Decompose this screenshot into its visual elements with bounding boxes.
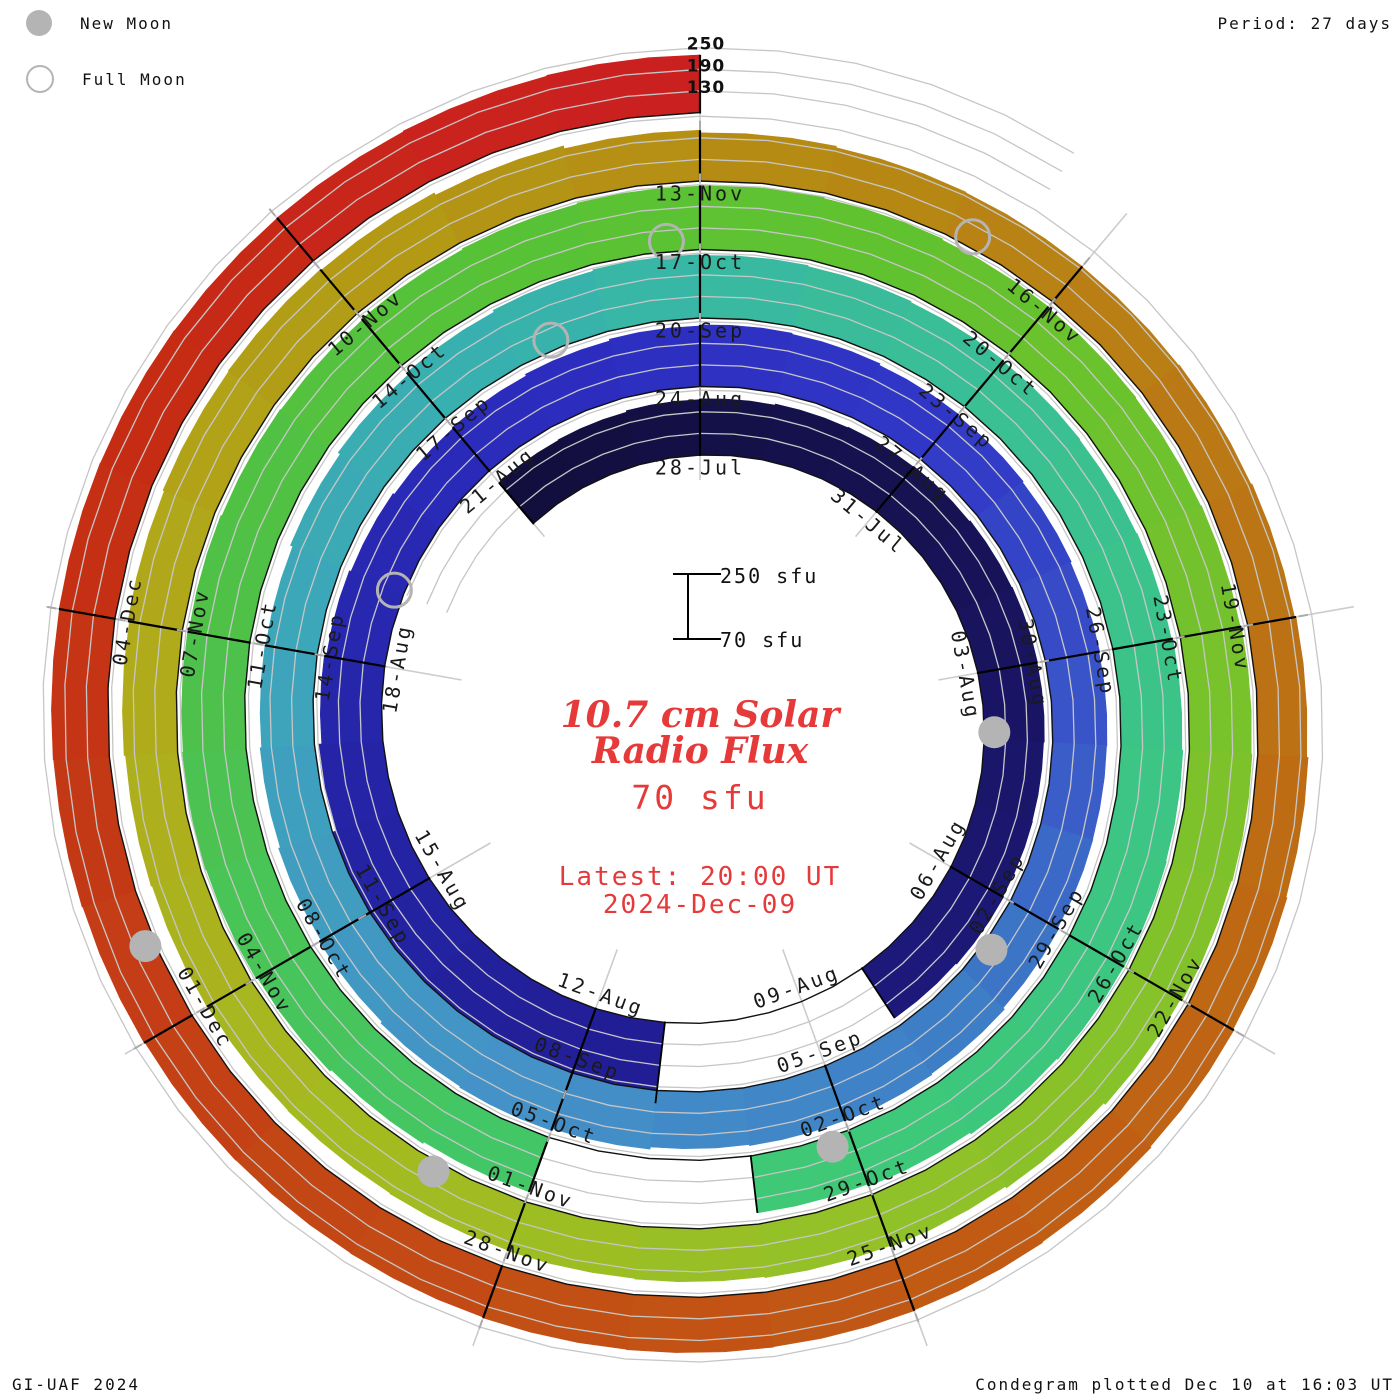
period-label: Period: 27 days (1218, 14, 1393, 33)
new-moon-marker (975, 934, 1007, 966)
plotted-timestamp: Condegram plotted Dec 10 at 16:03 UT (975, 1375, 1394, 1394)
date-label: 24-Aug (655, 387, 745, 411)
new-moon-icon (26, 10, 52, 36)
date-label: 28-Jul (655, 456, 745, 480)
outer-scale-number: 250 (687, 35, 726, 55)
new-moon-marker (417, 1156, 449, 1188)
scale-top-label: 250 sfu (720, 564, 818, 588)
moon-legend: New Moon Full Moon (26, 6, 187, 118)
full-moon-icon (26, 65, 54, 93)
chart-title-line2: Radio Flux (0, 730, 1400, 772)
latest-time-label: Latest: 20:00 UT (0, 862, 1400, 892)
legend-row-full-moon: Full Moon (26, 62, 187, 96)
scale-bottom-label: 70 sfu (720, 628, 804, 652)
new-moon-marker (129, 930, 161, 962)
credit-label: GI-UAF 2024 (12, 1375, 140, 1394)
latest-date-label: 2024-Dec-09 (0, 890, 1400, 920)
condegram-page: 28-Jul31-Jul03-Aug06-Aug09-Aug12-Aug15-A… (0, 0, 1400, 1400)
outer-scale-number: 130 (687, 78, 726, 98)
date-label: 17-Oct (655, 250, 745, 274)
latest-flux-value: 70 sfu (0, 778, 1400, 817)
date-label: 20-Sep (655, 319, 745, 343)
date-label: 13-Nov (655, 182, 745, 206)
outer-scale-number: 190 (687, 56, 726, 76)
new-moon-label: New Moon (80, 14, 173, 33)
full-moon-label: Full Moon (82, 70, 187, 89)
date-label: 09-Aug (750, 960, 843, 1013)
legend-row-new-moon: New Moon (26, 6, 187, 40)
